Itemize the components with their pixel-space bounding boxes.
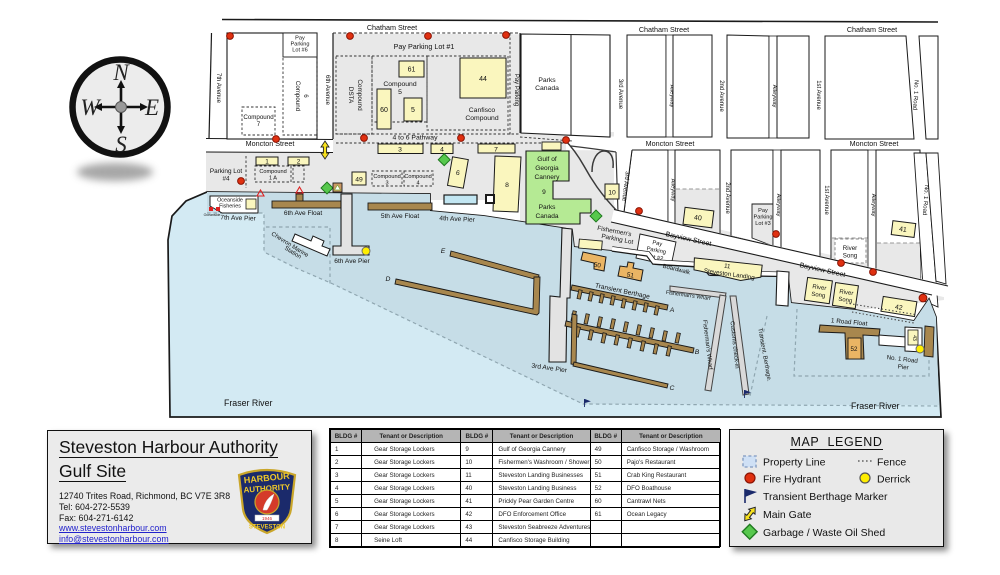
svg-text:B: B	[695, 349, 700, 356]
svg-text:Alleyway: Alleyway	[771, 85, 777, 108]
svg-text:Compound: Compound	[243, 114, 274, 121]
svg-text:River: River	[843, 245, 857, 252]
svg-text:5th Ave Float: 5th Ave Float	[381, 213, 420, 220]
svg-text:1st Avenue: 1st Avenue	[815, 80, 821, 110]
svg-text:Compound: Compound	[404, 174, 431, 180]
svg-text:D: D	[386, 276, 391, 283]
svg-text:7: 7	[494, 147, 498, 154]
svg-text:Lot #3: Lot #3	[755, 221, 771, 227]
svg-text:1st Avenue: 1st Avenue	[823, 185, 829, 215]
svg-text:Pier: Pier	[897, 363, 909, 371]
svg-text:Song: Song	[843, 253, 858, 260]
svg-text:Alleyway: Alleyway	[870, 194, 876, 217]
svg-text:8: 8	[505, 182, 509, 189]
svg-text:E: E	[441, 248, 446, 255]
svg-text:DSTA: DSTA	[347, 87, 354, 104]
svg-text:3rd Avenue: 3rd Avenue	[617, 79, 623, 110]
svg-text:Lot #6: Lot #6	[292, 48, 308, 54]
svg-text:Pay Parking: Pay Parking	[513, 74, 519, 106]
svg-text:6th Ave Pier: 6th Ave Pier	[334, 258, 370, 265]
svg-text:Main Gate: Main Gate	[763, 509, 812, 521]
svg-text:7th Avenue: 7th Avenue	[215, 73, 221, 104]
svg-text:Pay Parking Lot #1: Pay Parking Lot #1	[394, 42, 455, 51]
svg-text:Canada: Canada	[535, 213, 558, 220]
svg-text:Property Line: Property Line	[763, 457, 826, 469]
svg-text:Fisheries: Fisheries	[219, 204, 241, 210]
svg-text:6th Ave Float: 6th Ave Float	[284, 210, 323, 217]
svg-text:3: 3	[398, 147, 402, 154]
svg-text:S: S	[115, 132, 127, 157]
svg-text:Transient Berthage Marker: Transient Berthage Marker	[763, 491, 888, 503]
svg-text:3: 3	[385, 181, 388, 187]
svg-text:Pay: Pay	[758, 208, 768, 214]
svg-text:4: 4	[416, 181, 419, 187]
svg-text:Fraser River: Fraser River	[224, 398, 272, 408]
svg-text:61: 61	[408, 67, 416, 74]
svg-text:6th Avenue: 6th Avenue	[324, 75, 330, 106]
svg-text:Parks: Parks	[539, 204, 557, 211]
svg-text:Compound: Compound	[373, 174, 400, 180]
svg-text:Chatham Street: Chatham Street	[847, 25, 897, 34]
svg-text:#4: #4	[222, 176, 230, 183]
svg-text:5: 5	[398, 89, 402, 96]
svg-text:Derrick: Derrick	[877, 474, 911, 486]
svg-text:STEVESTON: STEVESTON	[249, 525, 285, 531]
svg-text:A: A	[669, 307, 675, 314]
svg-text:Oceanside: Oceanside	[204, 213, 221, 217]
svg-text:42: 42	[894, 304, 903, 312]
svg-text:1 A: 1 A	[269, 176, 277, 182]
svg-text:7: 7	[257, 121, 261, 128]
svg-text:Canfisco: Canfisco	[469, 107, 496, 114]
svg-text:Compound: Compound	[294, 81, 301, 112]
svg-text:Fire Hydrant: Fire Hydrant	[763, 474, 821, 486]
svg-text:60: 60	[380, 107, 388, 114]
svg-text:Parks: Parks	[538, 77, 556, 84]
svg-text:Moncton Street: Moncton Street	[246, 139, 295, 148]
svg-text:40: 40	[694, 215, 703, 223]
svg-text:Moncton Street: Moncton Street	[850, 139, 899, 148]
svg-text:44: 44	[479, 76, 487, 83]
svg-text:Fraser River: Fraser River	[851, 401, 899, 411]
svg-text:2nd Avenue: 2nd Avenue	[724, 182, 730, 214]
svg-text:6: 6	[302, 94, 309, 98]
svg-text:Compound: Compound	[383, 81, 416, 88]
svg-text:Compound: Compound	[465, 115, 498, 122]
svg-text:43: 43	[911, 335, 917, 341]
svg-text:4 to 6 Pathway: 4 to 6 Pathway	[393, 135, 439, 142]
svg-text:Georgia: Georgia	[535, 165, 559, 172]
svg-text:41: 41	[899, 226, 908, 234]
svg-text:Parking Lot: Parking Lot	[210, 168, 243, 175]
svg-text:C: C	[670, 385, 675, 392]
svg-text:Fence: Fence	[877, 457, 906, 469]
svg-text:7th Ave Pier: 7th Ave Pier	[220, 214, 256, 222]
svg-text:2nd Avenue: 2nd Avenue	[718, 80, 724, 112]
svg-text:Chatham Street: Chatham Street	[639, 25, 689, 34]
svg-text:4: 4	[440, 147, 444, 154]
svg-text:Compound: Compound	[259, 169, 286, 175]
svg-text:Parking: Parking	[754, 215, 773, 221]
svg-text:Canada: Canada	[535, 85, 559, 92]
svg-text:52: 52	[851, 346, 858, 353]
svg-text:Garbage / Waste Oil Shed: Garbage / Waste Oil Shed	[763, 527, 885, 539]
svg-text:Alleyway: Alleyway	[775, 194, 781, 217]
svg-text:9: 9	[542, 189, 546, 196]
svg-text:Cannery: Cannery	[535, 174, 561, 181]
svg-text:Compound: Compound	[356, 79, 363, 111]
svg-text:Gulf of: Gulf of	[537, 156, 557, 163]
svg-text:2: 2	[297, 159, 301, 166]
svg-text:49: 49	[355, 177, 363, 184]
svg-text:1: 1	[265, 159, 269, 166]
svg-text:10: 10	[608, 190, 616, 197]
svg-text:Moncton Street: Moncton Street	[646, 139, 695, 148]
svg-text:Chatham Street: Chatham Street	[367, 23, 417, 32]
svg-text:1946: 1946	[262, 516, 273, 521]
svg-text:5: 5	[411, 107, 415, 114]
